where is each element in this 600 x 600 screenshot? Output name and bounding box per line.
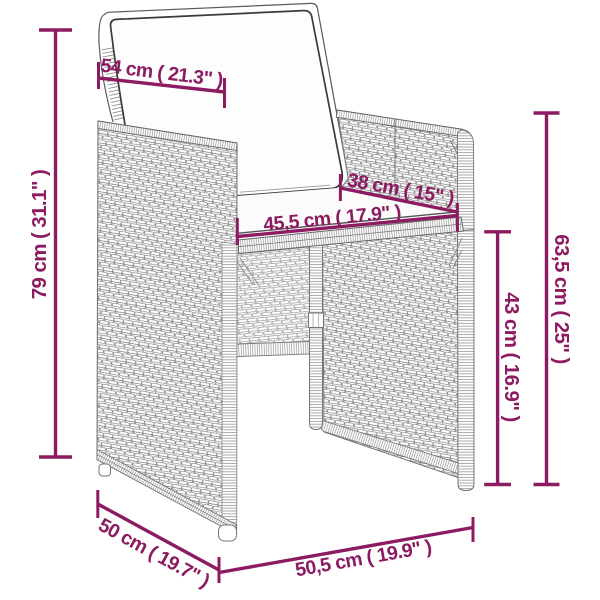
svg-text:43 cm ( 16.9" ): 43 cm ( 16.9" ) (500, 292, 523, 422)
svg-text:79 cm ( 31.1" ): 79 cm ( 31.1" ) (28, 170, 51, 300)
svg-text:63,5 cm ( 25" ): 63,5 cm ( 25" ) (550, 234, 573, 364)
